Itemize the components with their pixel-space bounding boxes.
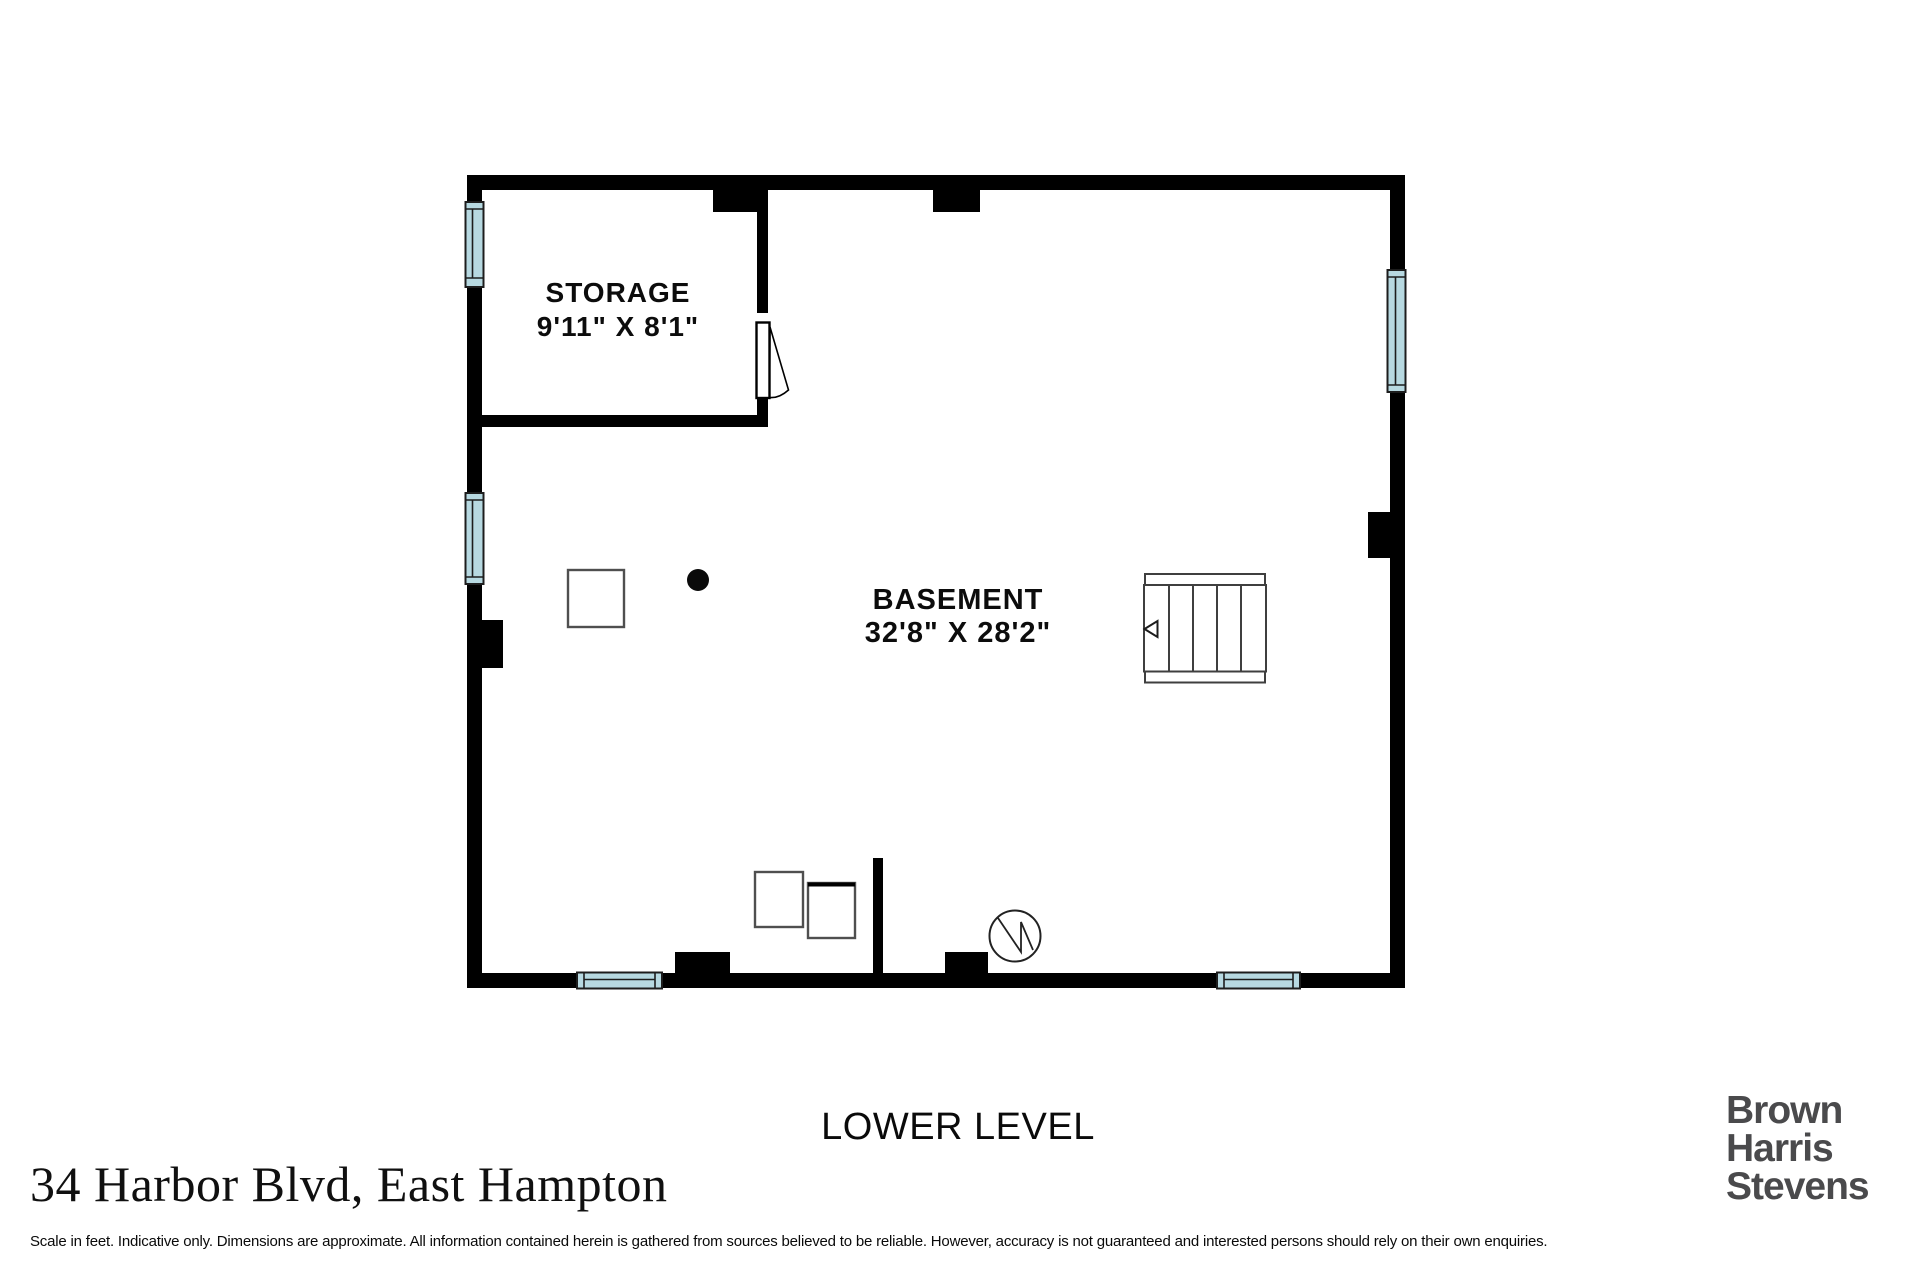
brand-line: Stevens: [1726, 1168, 1869, 1206]
wall-pier-top: [933, 190, 980, 212]
address: 34 Harbor Blvd, East Hampton: [30, 1155, 668, 1213]
washer-icon: [755, 872, 803, 927]
wall-pier-storage: [713, 190, 763, 212]
dryer-icon: [808, 883, 855, 938]
room-name: STORAGE: [467, 276, 769, 310]
brand-line: Harris: [1726, 1130, 1869, 1168]
water-heater-icon: [990, 911, 1041, 962]
storage-bottom-wall: [467, 415, 768, 427]
room-dimensions: 32'8" X 28'2": [758, 617, 1158, 650]
wall-top: [467, 175, 1405, 190]
partition-wall: [873, 858, 883, 988]
room-name: BASEMENT: [758, 584, 1158, 617]
wall-pier-left: [482, 620, 503, 668]
brand-line: Brown: [1726, 1092, 1869, 1130]
room-label-storage: STORAGE 9'11" X 8'1": [467, 276, 769, 344]
storage-right-wall-lower: [757, 396, 768, 427]
window-icon: [1217, 973, 1300, 989]
wall-pier-bottom-right: [945, 952, 988, 974]
stairs-icon: [1144, 574, 1266, 683]
room-dimensions: 9'11" X 8'1": [467, 310, 769, 344]
disclaimer: Scale in feet. Indicative only. Dimensio…: [30, 1233, 1547, 1250]
wall-pier-bottom-left: [675, 952, 730, 974]
window-icon: [577, 973, 662, 989]
utility-box: [568, 570, 624, 627]
level-title: LOWER LEVEL: [708, 1106, 1208, 1149]
window-icon: [466, 202, 484, 287]
floorplan-page: STORAGE 9'11" X 8'1" BASEMENT 32'8" X 28…: [0, 0, 1920, 1285]
window-icon: [1388, 270, 1406, 392]
brand-logo: Brown Harris Stevens: [1726, 1092, 1869, 1206]
support-column-icon: [687, 569, 709, 591]
window-icon: [466, 493, 484, 584]
wall-pier-right: [1368, 512, 1390, 558]
room-label-basement: BASEMENT 32'8" X 28'2": [758, 584, 1158, 650]
